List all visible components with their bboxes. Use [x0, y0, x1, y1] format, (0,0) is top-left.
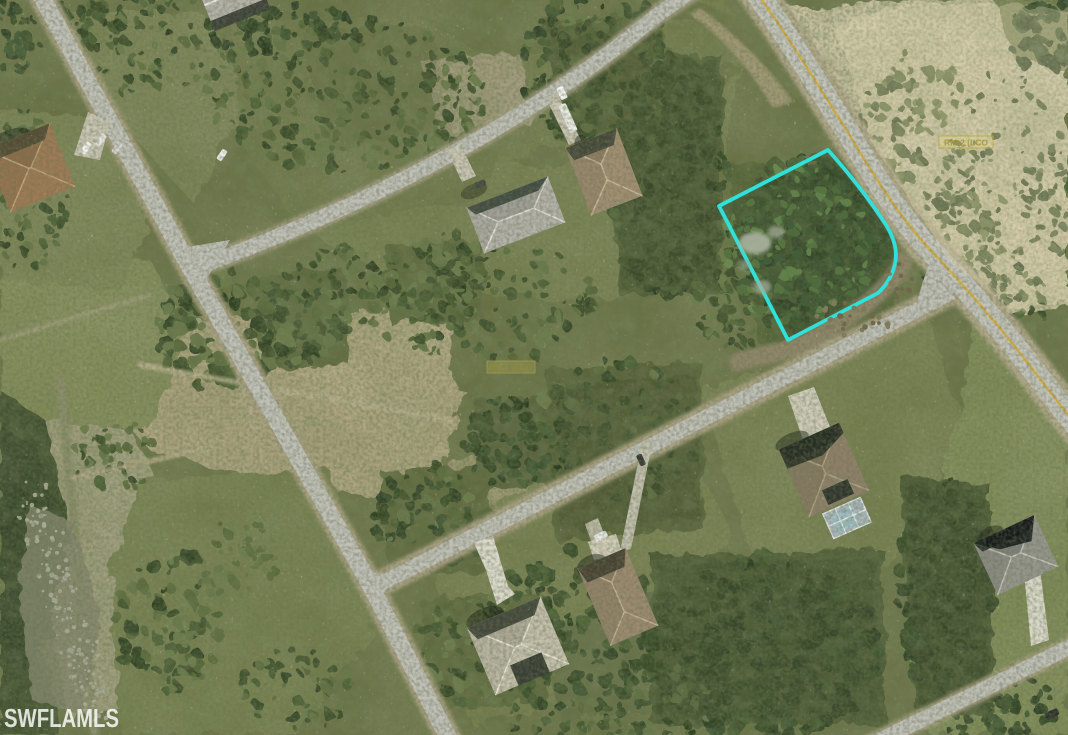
svg-text:RS-1 (LCO: RS-1 (LCO: [490, 363, 533, 373]
svg-text:SWFLAMLS: SWFLAMLS: [4, 703, 119, 733]
svg-text:RM-2 (LCO: RM-2 (LCO: [944, 138, 988, 148]
